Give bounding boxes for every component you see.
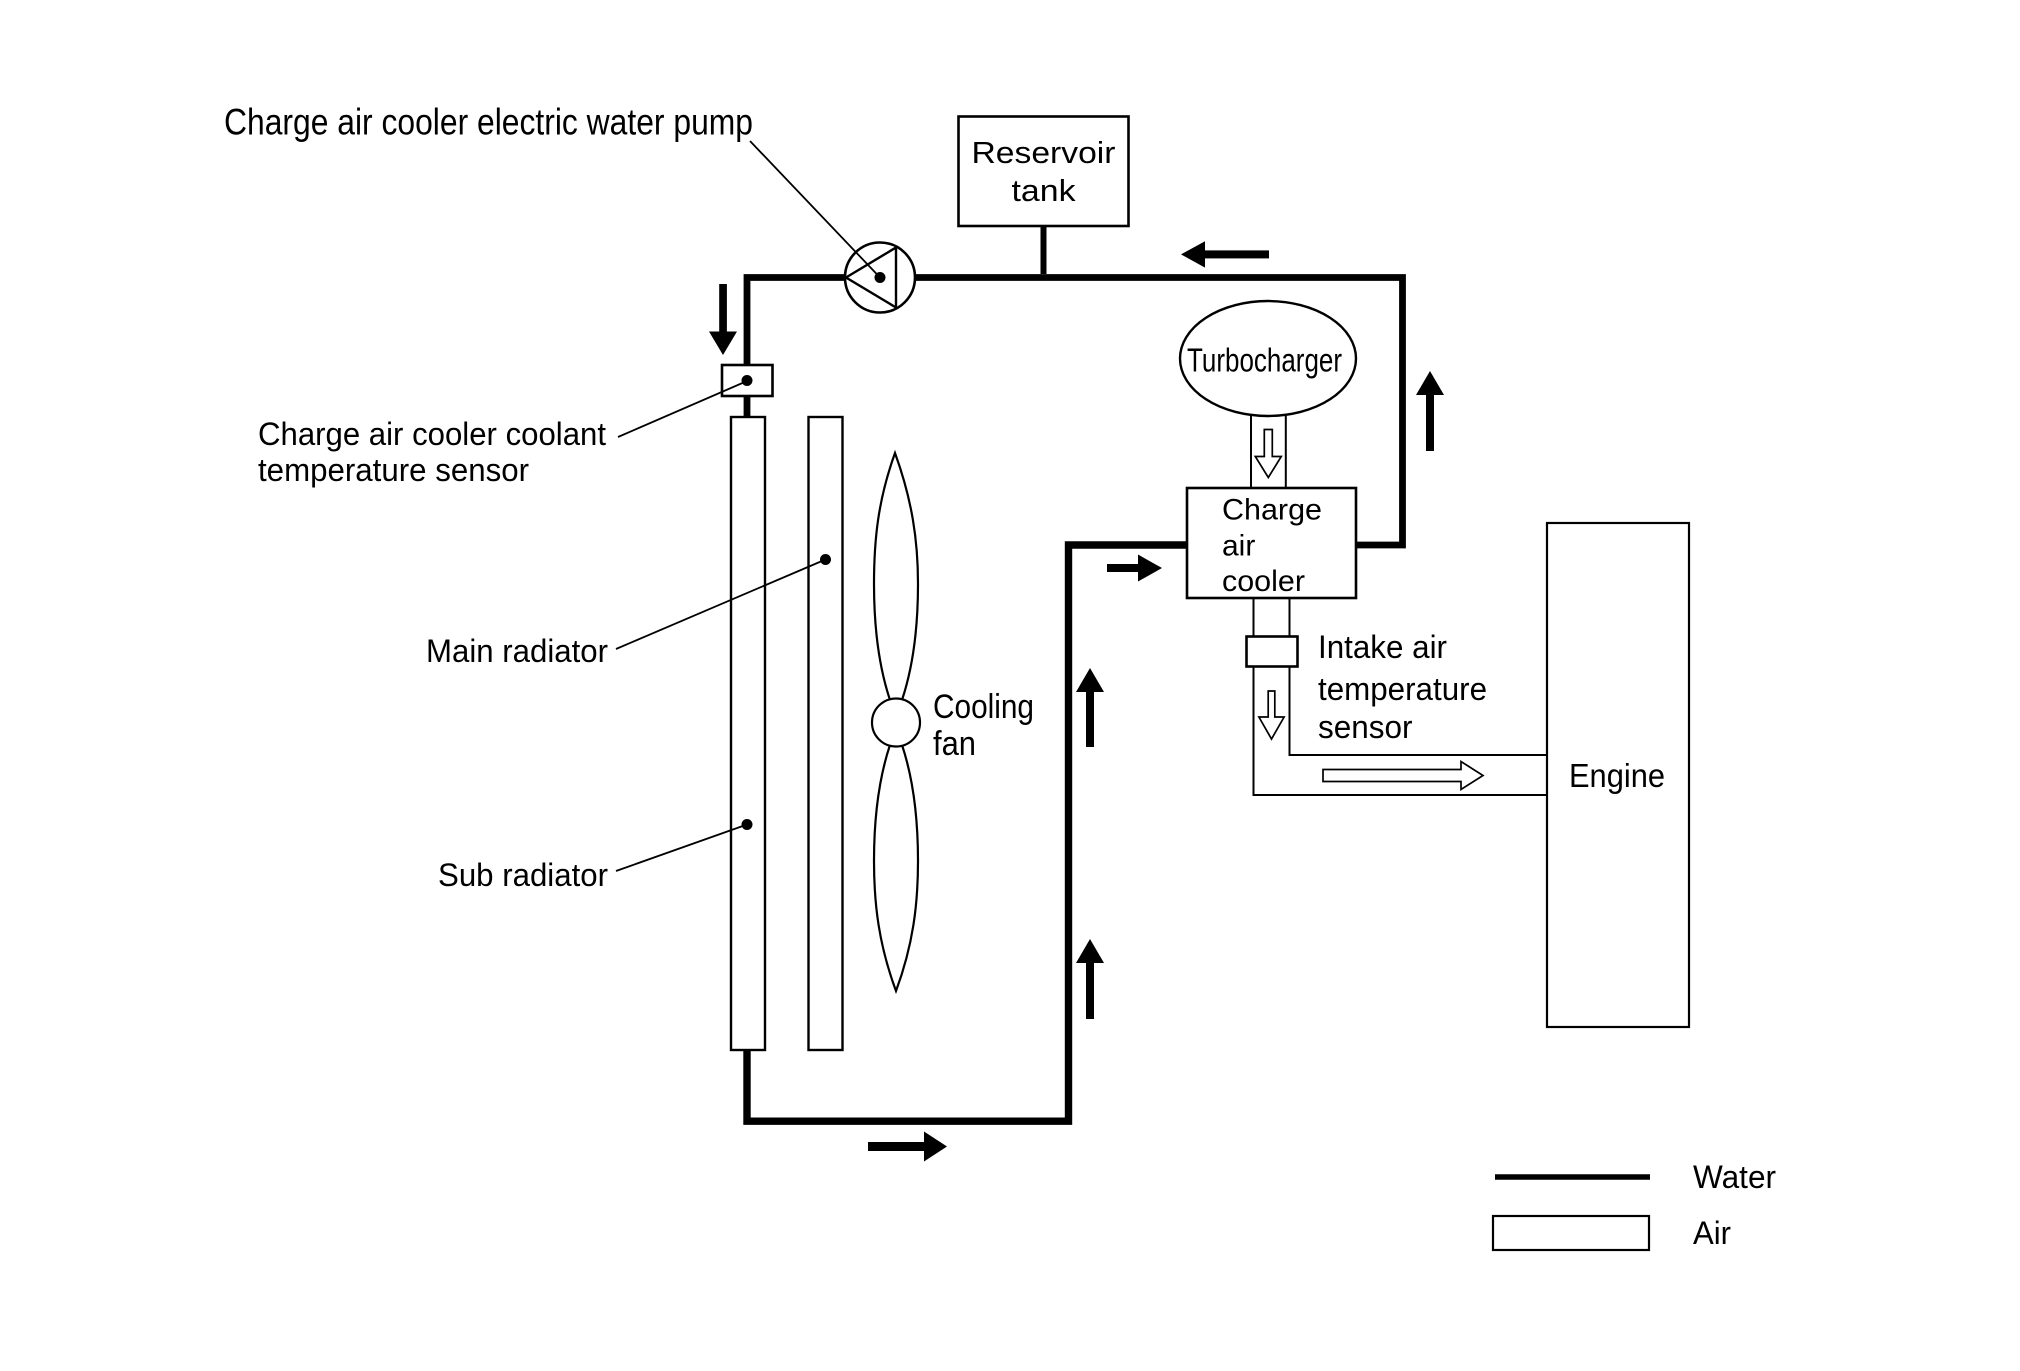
- svg-text:Charge air cooler coolant: Charge air cooler coolant: [258, 416, 606, 452]
- svg-text:air: air: [1222, 529, 1255, 562]
- svg-text:cooler: cooler: [1222, 565, 1305, 598]
- svg-text:Engine: Engine: [1569, 757, 1665, 794]
- svg-text:Charge air cooler electric wat: Charge air cooler electric water pump: [224, 102, 753, 143]
- svg-text:fan: fan: [933, 725, 976, 763]
- svg-text:Main radiator: Main radiator: [426, 633, 608, 669]
- svg-text:Intake air: Intake air: [1318, 629, 1447, 665]
- svg-text:temperature: temperature: [1318, 671, 1487, 707]
- svg-text:Reservoir: Reservoir: [972, 136, 1116, 170]
- svg-text:Water: Water: [1693, 1159, 1776, 1195]
- svg-text:Sub radiator: Sub radiator: [438, 857, 608, 893]
- svg-text:Charge: Charge: [1222, 494, 1322, 527]
- svg-text:Air: Air: [1693, 1215, 1731, 1251]
- svg-text:tank: tank: [1012, 174, 1077, 208]
- svg-text:sensor: sensor: [1318, 709, 1413, 745]
- svg-text:temperature sensor: temperature sensor: [258, 452, 529, 488]
- svg-text:Turbocharger: Turbocharger: [1187, 342, 1342, 379]
- svg-text:Cooling: Cooling: [933, 688, 1034, 726]
